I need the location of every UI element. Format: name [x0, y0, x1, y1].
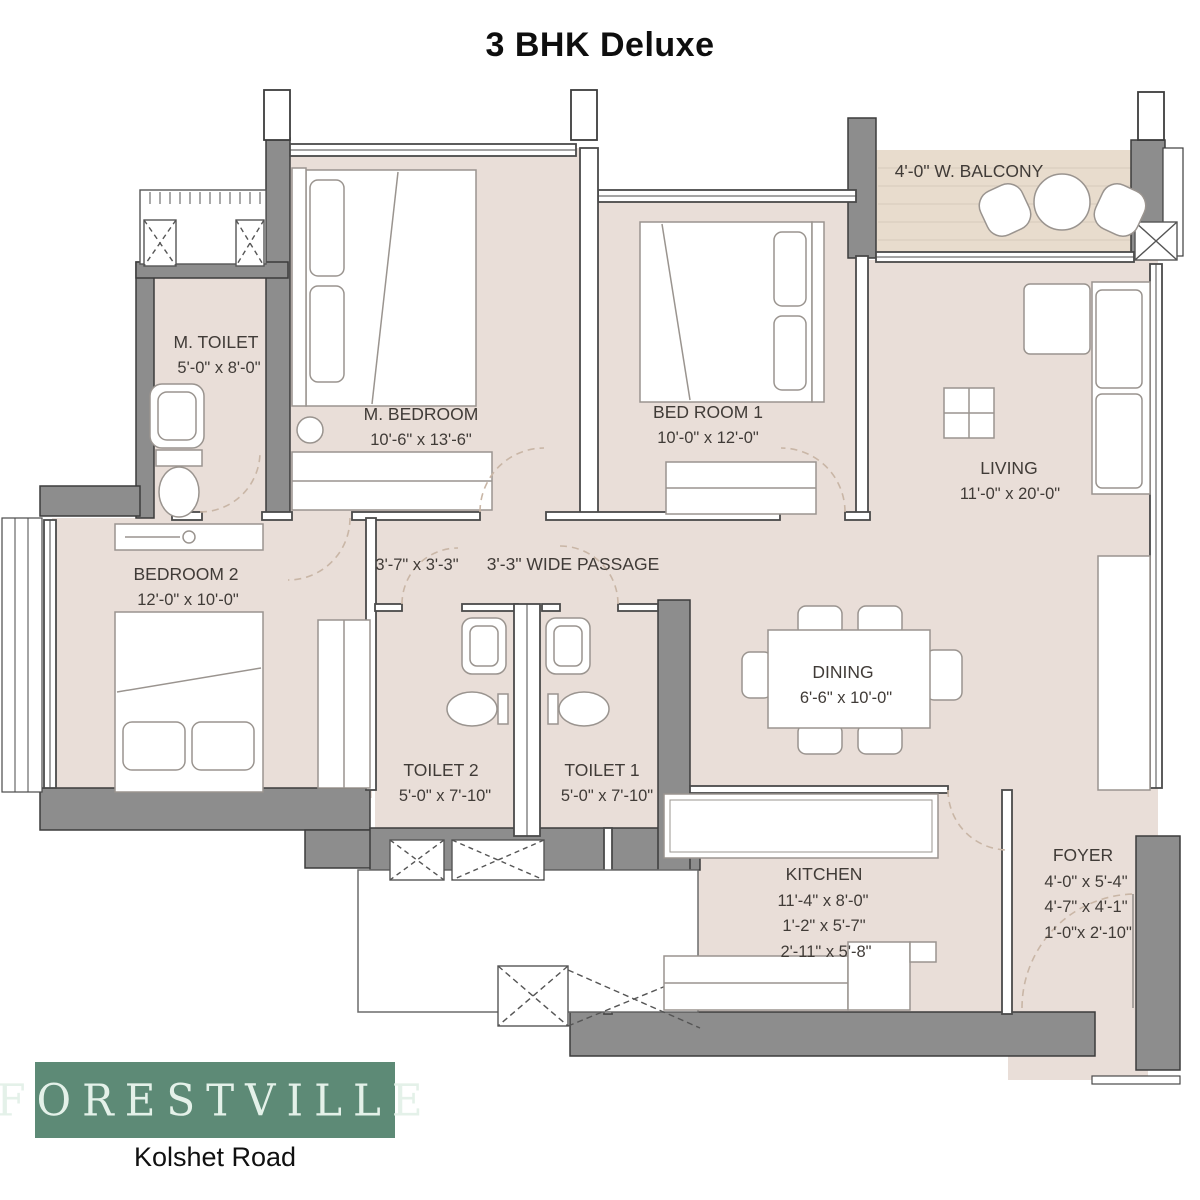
partition-wall [856, 256, 868, 516]
foyer-dims-2: 4'-7" x 4'-1" [1044, 898, 1127, 916]
brand-location: Kolshet Road [35, 1142, 395, 1173]
duct-box [390, 840, 444, 880]
wall [40, 788, 370, 830]
toilet2-dims: 5'-0" x 7'-10" [399, 787, 491, 805]
kitchen-dims-1: 11'-4" x 8'-0" [777, 892, 868, 910]
wc [159, 467, 199, 517]
dining-dims: 6'-6" x 10'-0" [800, 689, 892, 707]
wall-segment [375, 604, 402, 611]
partition-wall [1002, 790, 1012, 1014]
foyer-dims-1: 4'-0" x 5'-4" [1044, 873, 1127, 891]
partition-wall [580, 148, 598, 516]
living-dims: 11'-0" x 20'-0" [960, 485, 1060, 503]
wc [559, 692, 609, 726]
wall-segment [845, 512, 870, 520]
wall-segment [542, 604, 560, 611]
wall [266, 138, 290, 518]
column [264, 90, 290, 140]
wc-tank [498, 694, 508, 724]
balcony-label: 4'-0" W. BALCONY [895, 161, 1044, 181]
passage-niche-dims: 3'-7" x 3'-3" [375, 556, 458, 574]
wall-segment [1092, 1076, 1180, 1084]
m-bedroom-bed [292, 168, 476, 406]
wc [447, 692, 497, 726]
m-bedroom-label: M. BEDROOM [364, 404, 479, 424]
tv-unit [1098, 556, 1150, 790]
floor-plan: 4'-0" W. BALCONY M. TOILET 5'-0" x 8'-0"… [0, 0, 1200, 1200]
coffee-table [944, 388, 994, 438]
bedroom2-bed [115, 612, 263, 792]
m-bedroom-wardrobe [292, 452, 492, 510]
duct-box [1135, 222, 1177, 260]
entry-strip-floor [1095, 1012, 1136, 1078]
bedroom1-bed [640, 222, 824, 402]
wall [40, 486, 140, 516]
dining-label: DINING [812, 662, 873, 682]
m-toilet-dims: 5'-0" x 8'-0" [177, 359, 260, 377]
column [1138, 92, 1164, 140]
toilet1-dims: 5'-0" x 7'-10" [561, 787, 653, 805]
bedroom2-dims: 12'-0" x 10'-0" [137, 591, 239, 609]
foyer-dims-3: 1'-0"x 2'-10" [1044, 924, 1132, 942]
wall-segment [462, 604, 518, 611]
bedroom1-label: BED ROOM 1 [653, 402, 763, 422]
brand-logo: FORESTVILLE [35, 1062, 395, 1138]
passage-label: 3'-3" WIDE PASSAGE [487, 554, 660, 574]
wc-tank [156, 450, 202, 466]
bedroom1-wardrobe [666, 462, 816, 514]
toilet1-label: TOILET 1 [564, 760, 639, 780]
side-ledge [2, 518, 42, 792]
bedroom2-dresser [115, 524, 263, 550]
brand-logo-text: FORESTVILLE [0, 1074, 434, 1125]
wc-tank [548, 694, 558, 724]
service-ledge [140, 190, 266, 266]
wall [570, 1012, 1095, 1056]
kitchen-dims-2: 1'-2" x 5'-7" [782, 917, 865, 935]
wall [1136, 836, 1180, 1070]
duct-box [452, 840, 544, 880]
bedroom2-label: BEDROOM 2 [133, 564, 238, 584]
living-label: LIVING [980, 458, 1037, 478]
kitchen-dims-3: 2'-11" x 5'-8" [780, 943, 871, 961]
bedroom2-wardrobe [318, 620, 370, 788]
m-bedroom-dims: 10'-6" x 13'-6" [370, 431, 472, 449]
stool [297, 417, 323, 443]
foyer-label: FOYER [1053, 845, 1113, 865]
wall-segment [690, 786, 948, 793]
balcony-table [1034, 174, 1090, 230]
kitchen-label: KITCHEN [786, 864, 863, 884]
wall-segment [618, 604, 658, 611]
wall [848, 118, 876, 258]
wall-segment [262, 512, 292, 520]
column [571, 90, 597, 140]
m-toilet-label: M. TOILET [174, 332, 259, 352]
toilet2-label: TOILET 2 [403, 760, 478, 780]
bedroom1-dims: 10'-0" x 12'-0" [657, 429, 759, 447]
